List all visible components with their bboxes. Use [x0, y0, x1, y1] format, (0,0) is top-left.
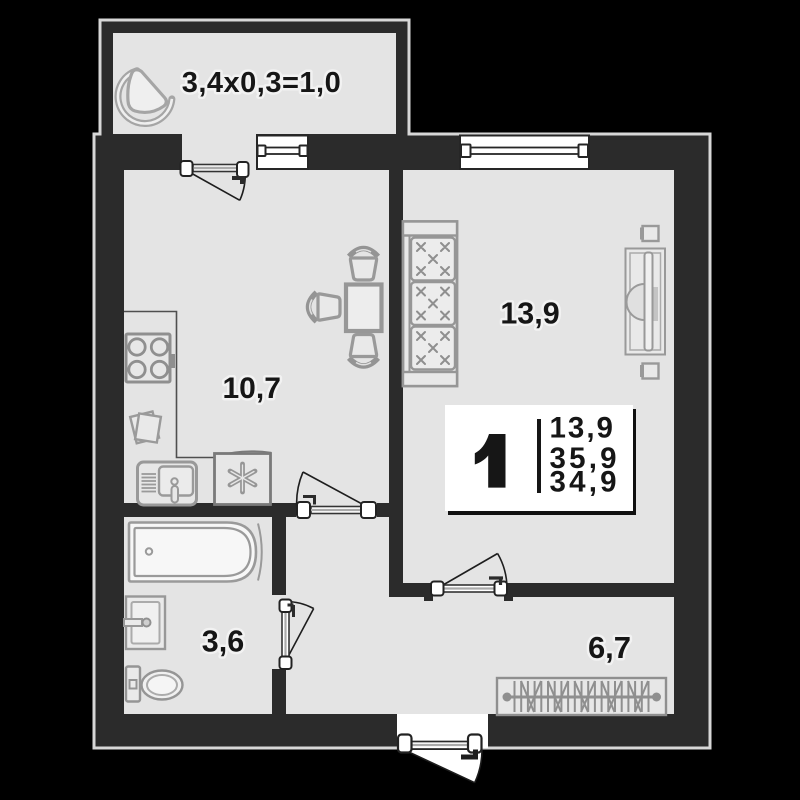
svg-text:6,7: 6,7 [588, 630, 631, 665]
svg-text:13,9: 13,9 [550, 412, 615, 445]
svg-text:3,4х0,3=1,0: 3,4х0,3=1,0 [182, 67, 342, 99]
svg-text:10,7: 10,7 [223, 372, 281, 405]
svg-text:34,9: 34,9 [550, 466, 620, 499]
svg-text:13,9: 13,9 [500, 297, 559, 331]
svg-text:3,6: 3,6 [202, 625, 244, 659]
